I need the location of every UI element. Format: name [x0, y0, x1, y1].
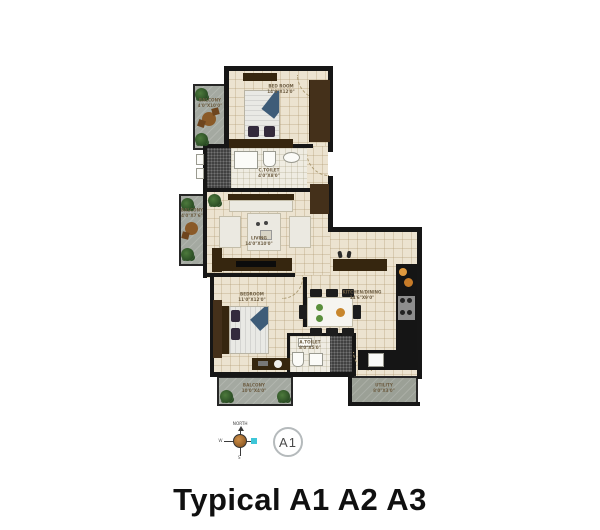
- plant-icon: [181, 248, 194, 261]
- pillow-icon: [248, 126, 259, 137]
- unit-badge: A1: [273, 427, 303, 457]
- wall-toilet1-bottom: [203, 188, 313, 192]
- wall-bottom-main: [210, 372, 354, 377]
- shoe-cabinet-icon: [310, 184, 329, 214]
- stove-icon: [398, 296, 415, 320]
- bed-headboard: [229, 139, 293, 148]
- label-atoilet: A.TOILET8'0"X5'0": [289, 340, 331, 350]
- washbasin-icon: [283, 152, 300, 163]
- floorplan-page: BED ROOM14'0"X12'0" BALCONY4'0"X10'0" C.…: [0, 0, 600, 530]
- label-balcony1: BALCONY4'0"X10'0": [189, 98, 231, 108]
- label-bedroom2: BEDROOM11'0"X12'0": [231, 292, 273, 302]
- compass-west-label: W: [218, 439, 222, 444]
- wall-step: [328, 227, 422, 232]
- label-kitchen: KITCHEN/DINING14'6"X9'0": [341, 290, 383, 300]
- dining-chair-icon: [326, 289, 338, 297]
- toilet2-tiles: [330, 336, 352, 372]
- label-balcony3: BALCONY10'0"X4'0": [233, 383, 275, 393]
- wc-icon: [263, 151, 276, 167]
- dress-area-tiles: [207, 148, 231, 188]
- plant-icon: [195, 133, 208, 146]
- dining-chair-icon: [310, 289, 322, 297]
- kitchen-decor: [399, 268, 407, 276]
- dining-chair-icon: [342, 328, 354, 336]
- label-living: LIVING14'0"X10'0": [238, 236, 280, 246]
- label-utility: UTILITY8'0"X3'0": [363, 383, 405, 393]
- plant-icon: [277, 390, 290, 403]
- compass-rose: [233, 434, 247, 448]
- page-title: Typical A1 A2 A3: [0, 482, 600, 518]
- armchair-icon: [289, 216, 311, 248]
- plant-icon: [208, 194, 221, 207]
- crockery-cabinet: [333, 259, 387, 271]
- dining-chair-icon: [310, 328, 322, 336]
- shower-icon: [234, 151, 258, 169]
- sink-icon: [368, 353, 384, 367]
- wall-niche: [196, 154, 204, 165]
- wardrobe-icon: [309, 80, 330, 142]
- kitchen-counter-bottom: [358, 350, 418, 370]
- label-bedroom1: BED ROOM14'0"X12'0": [260, 84, 302, 94]
- dining-table-icon: [307, 297, 353, 327]
- pillow-icon: [231, 328, 240, 340]
- wall-utility-bottom: [348, 402, 420, 406]
- bed2-headboard: [222, 306, 229, 354]
- wardrobe-icon: [213, 300, 222, 358]
- shower-icon: [309, 353, 323, 366]
- dining-chair-icon: [326, 328, 338, 336]
- compass-south-label: S: [238, 456, 241, 461]
- sofa-icon: [229, 200, 293, 212]
- label-balcony2: BALCONY4'0"X7'6": [171, 208, 213, 218]
- tv-console-icon: [220, 258, 292, 271]
- compass-east-marker: [251, 438, 257, 444]
- wc-icon: [292, 352, 304, 367]
- kitchen-decor: [404, 278, 413, 287]
- wall-top: [224, 66, 332, 71]
- pillow-icon: [264, 126, 275, 137]
- dining-chair-icon: [353, 305, 361, 319]
- plant-icon: [220, 390, 233, 403]
- dining-chair-icon: [299, 305, 307, 319]
- wall-utility-left: [348, 374, 352, 404]
- wall-living-bedroom2: [207, 273, 295, 277]
- label-ctoilet: C.TOILET4'0"X8'0": [248, 168, 290, 178]
- wall-niche: [196, 168, 204, 179]
- pillow-icon: [231, 310, 240, 322]
- dresser-icon: [252, 358, 294, 370]
- dresser-icon: [243, 73, 277, 81]
